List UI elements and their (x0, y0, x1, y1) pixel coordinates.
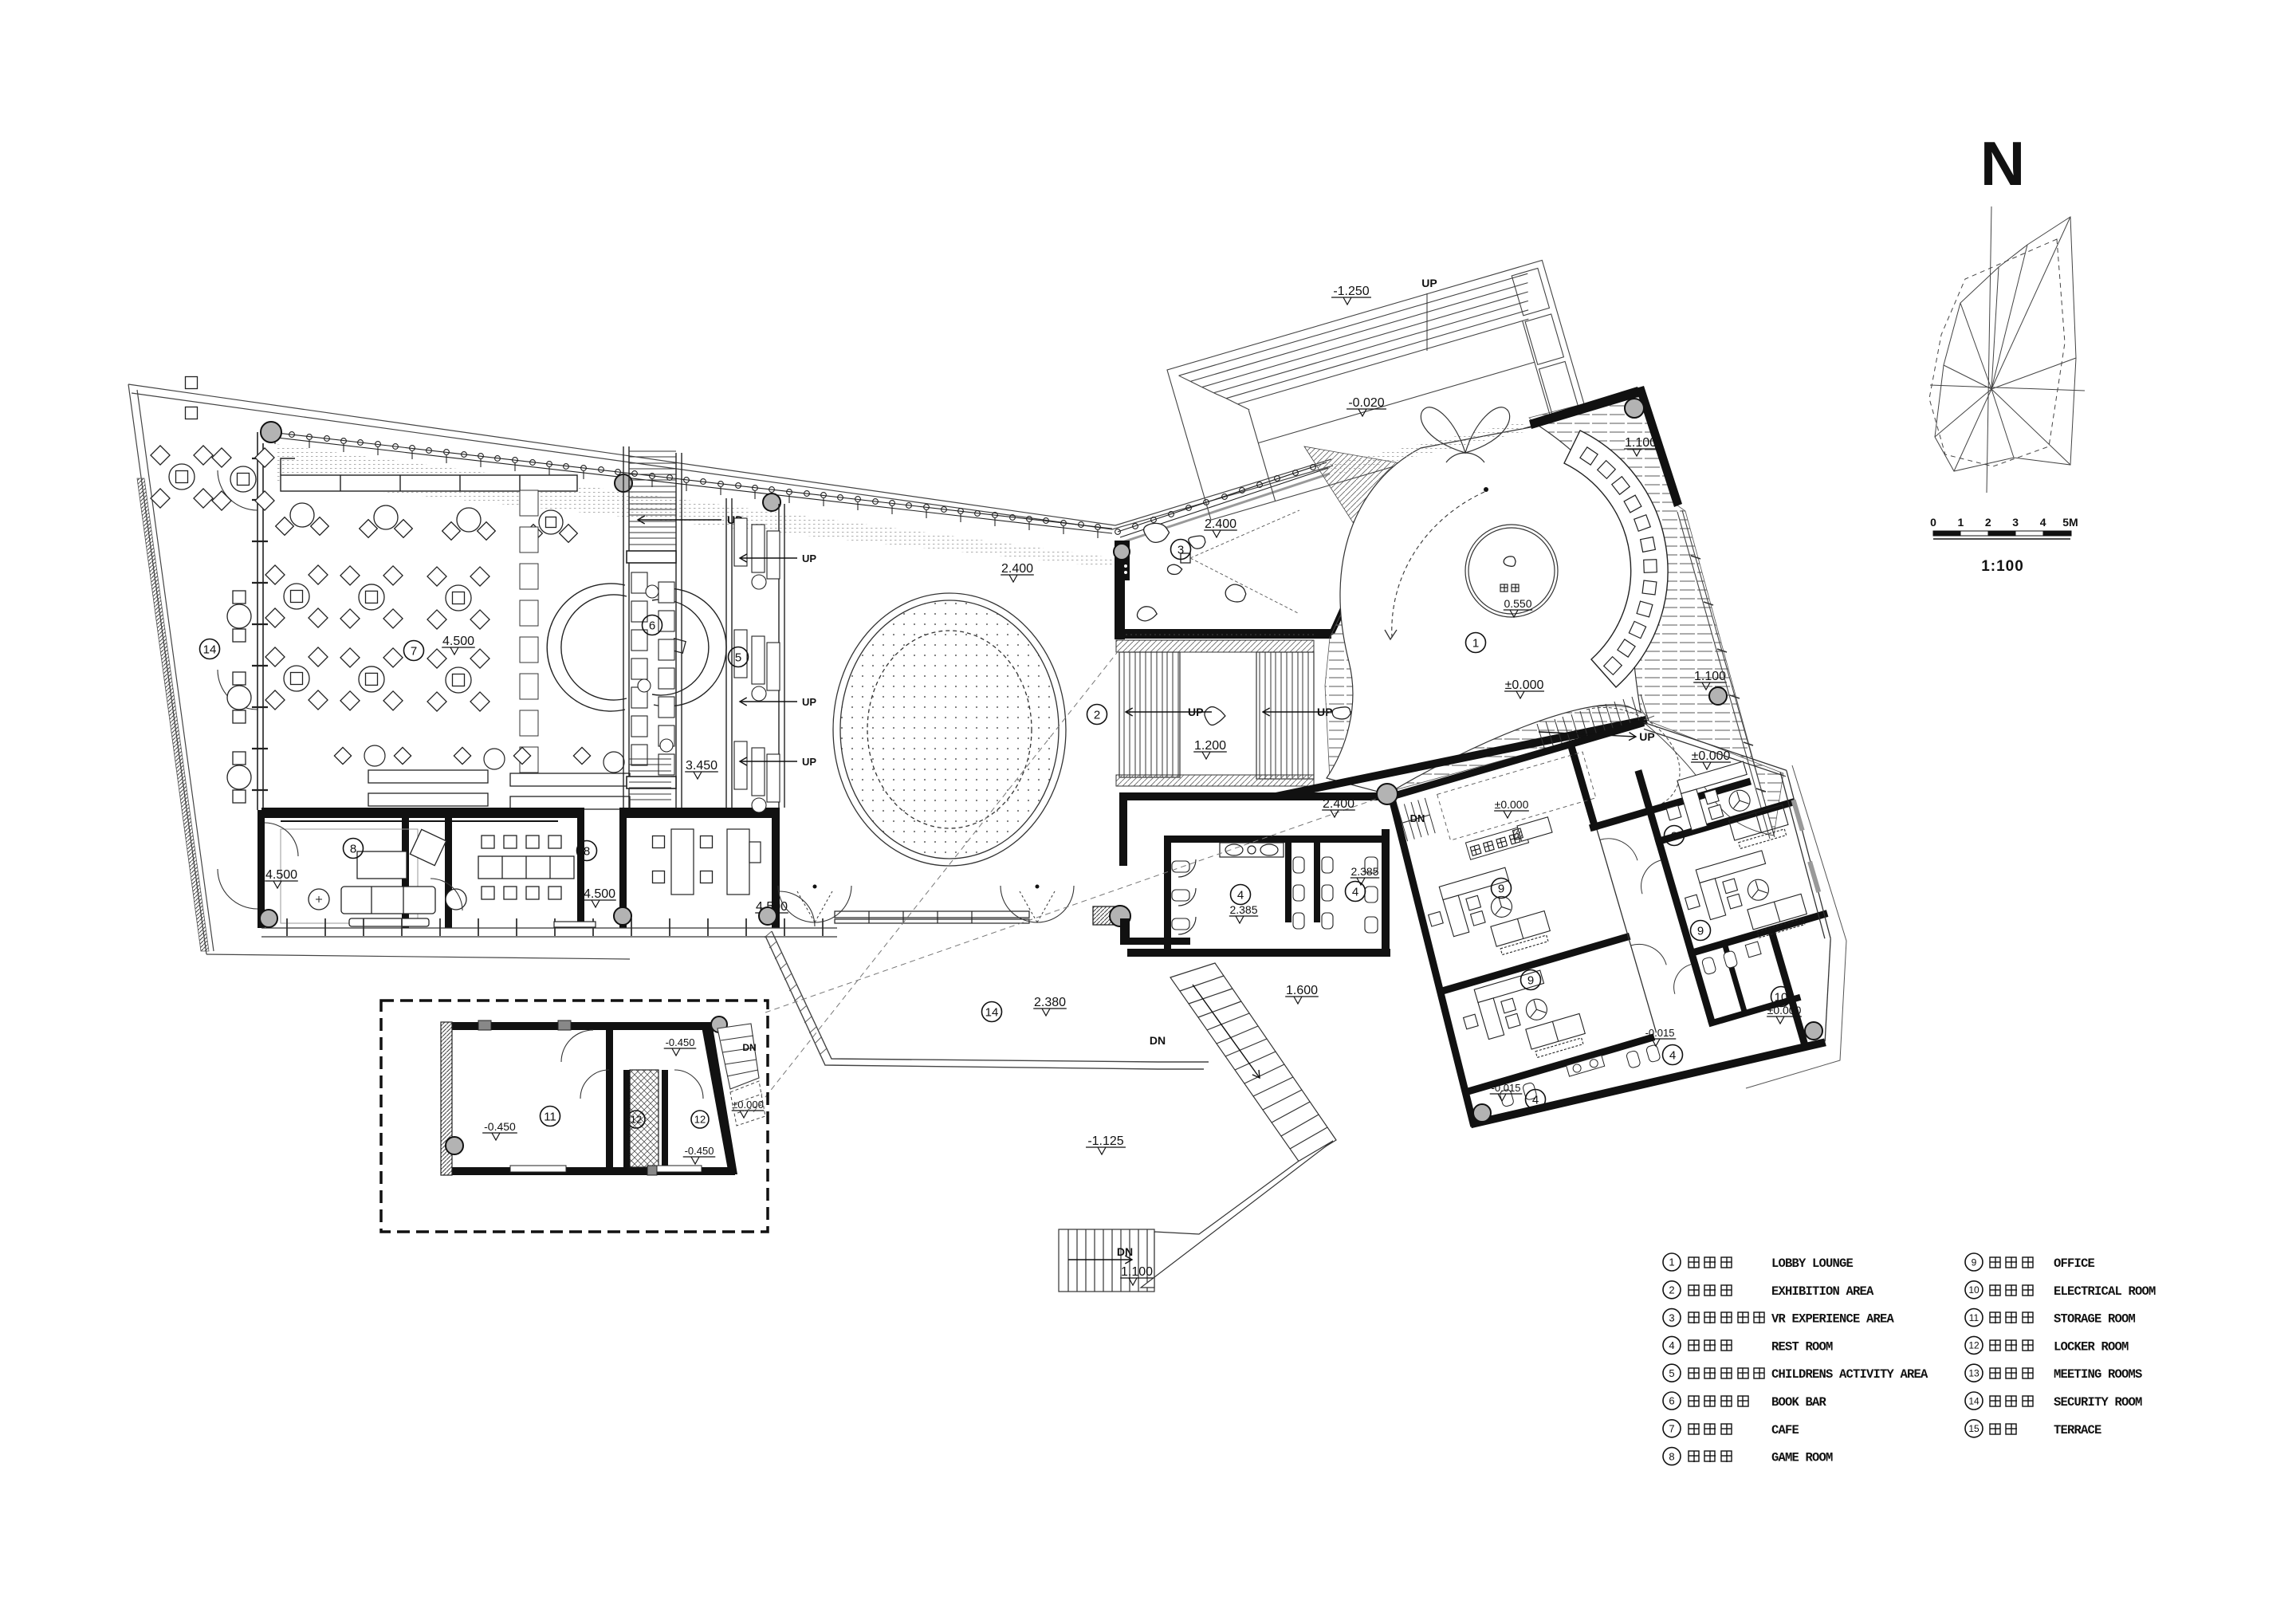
svg-text:1.600: 1.600 (1286, 984, 1318, 997)
svg-text:2.385: 2.385 (1350, 865, 1378, 878)
svg-text:8: 8 (1669, 1450, 1674, 1462)
svg-text:3.450: 3.450 (686, 759, 717, 773)
svg-text:5M: 5M (2062, 516, 2078, 529)
svg-text:8: 8 (350, 842, 356, 855)
svg-text:-0.450: -0.450 (685, 1145, 714, 1157)
svg-text:14: 14 (1968, 1395, 1980, 1406)
svg-text:12: 12 (631, 1114, 642, 1126)
svg-text:9: 9 (1972, 1256, 1977, 1268)
svg-text:MEETING ROOMS: MEETING ROOMS (2054, 1367, 2142, 1382)
svg-text:GAME ROOM: GAME ROOM (1771, 1451, 1833, 1465)
svg-text:7: 7 (411, 644, 417, 658)
svg-text:REST ROOM: REST ROOM (1771, 1339, 1833, 1354)
svg-text:1.200: 1.200 (1194, 739, 1226, 753)
svg-text:4: 4 (1532, 1093, 1539, 1107)
svg-text:±0.000: ±0.000 (1505, 678, 1544, 692)
svg-text:9: 9 (1671, 829, 1677, 843)
svg-text:DN: DN (1117, 1245, 1133, 1258)
svg-text:UP: UP (1421, 277, 1437, 289)
svg-text:8: 8 (584, 844, 590, 858)
svg-text:1: 1 (1958, 516, 1964, 529)
svg-text:2: 2 (1985, 516, 1991, 529)
svg-text:6: 6 (649, 619, 655, 632)
svg-text:5: 5 (735, 651, 741, 664)
svg-text:11: 11 (544, 1110, 556, 1123)
svg-text:±0.000: ±0.000 (1495, 798, 1529, 811)
svg-text:4: 4 (2040, 516, 2046, 529)
svg-text:4: 4 (1352, 885, 1358, 899)
svg-text:CAFE: CAFE (1771, 1423, 1799, 1437)
svg-text:14: 14 (985, 1005, 999, 1019)
svg-text:VR EXPERIENCE AREA: VR EXPERIENCE AREA (1771, 1312, 1895, 1327)
svg-text:3: 3 (2012, 516, 2019, 529)
svg-text:±0.000: ±0.000 (732, 1099, 764, 1111)
svg-text:4: 4 (1669, 1339, 1674, 1351)
svg-text:UP: UP (802, 756, 816, 768)
svg-text:6: 6 (1669, 1395, 1674, 1407)
svg-text:-1.250: -1.250 (1333, 285, 1369, 298)
svg-text:-0.015: -0.015 (1492, 1082, 1521, 1094)
svg-text:4: 4 (1669, 1048, 1676, 1062)
svg-text:N: N (1980, 128, 2025, 199)
svg-text:4.500: 4.500 (584, 887, 615, 901)
svg-text:OFFICE: OFFICE (2054, 1256, 2095, 1271)
svg-text:UP: UP (1188, 706, 1203, 718)
svg-text:9: 9 (1527, 973, 1534, 987)
svg-text:2.400: 2.400 (1001, 562, 1033, 576)
svg-text:5: 5 (1669, 1367, 1674, 1379)
svg-text:UP: UP (802, 552, 816, 564)
svg-text:DN: DN (742, 1042, 756, 1053)
svg-text:12: 12 (694, 1114, 706, 1126)
svg-text:-1.125: -1.125 (1087, 1134, 1123, 1148)
svg-text:1.100: 1.100 (1121, 1265, 1153, 1279)
svg-text:10: 10 (1775, 990, 1788, 1004)
svg-text:3: 3 (1177, 543, 1184, 556)
svg-text:2.385: 2.385 (1229, 903, 1257, 916)
svg-text:SECURITY ROOM: SECURITY ROOM (2054, 1395, 2142, 1410)
svg-text:2.400: 2.400 (1323, 797, 1354, 811)
svg-text:12: 12 (1968, 1340, 1980, 1351)
svg-text:ELECTRICAL ROOM: ELECTRICAL ROOM (2054, 1284, 2156, 1299)
svg-text:DN: DN (1410, 812, 1425, 824)
svg-text:10: 10 (1968, 1284, 1980, 1296)
svg-text:11: 11 (1969, 1312, 1980, 1323)
svg-text:-0.450: -0.450 (666, 1036, 695, 1048)
svg-text:1.100: 1.100 (1625, 436, 1657, 450)
svg-text:13: 13 (1968, 1368, 1980, 1379)
svg-text:1: 1 (1472, 636, 1479, 650)
svg-text:9: 9 (1498, 882, 1504, 895)
svg-text:3: 3 (1669, 1311, 1674, 1323)
svg-text:4.500: 4.500 (265, 868, 297, 882)
svg-text:4.500: 4.500 (442, 635, 474, 648)
svg-text:4: 4 (1237, 888, 1244, 902)
svg-text:BOOK BAR: BOOK BAR (1771, 1395, 1827, 1410)
svg-text:2: 2 (1669, 1284, 1674, 1296)
svg-text:1.100: 1.100 (1694, 670, 1726, 683)
svg-text:CHILDRENS ACTIVITY AREA: CHILDRENS ACTIVITY AREA (1771, 1367, 1928, 1382)
svg-text:2: 2 (1094, 708, 1100, 722)
svg-text:0: 0 (1930, 516, 1936, 529)
svg-text:±0.000: ±0.000 (1767, 1004, 1802, 1016)
svg-text:14: 14 (203, 643, 217, 656)
svg-text:2.380: 2.380 (1034, 996, 1066, 1009)
svg-text:TERRACE: TERRACE (2054, 1423, 2101, 1437)
svg-text:1:100: 1:100 (1981, 558, 2024, 575)
svg-text:STORAGE ROOM: STORAGE ROOM (2054, 1312, 2136, 1327)
svg-text:EXHIBITION AREA: EXHIBITION AREA (1771, 1284, 1874, 1299)
svg-text:-0.450: -0.450 (484, 1120, 516, 1133)
svg-text:7: 7 (1669, 1422, 1674, 1434)
svg-text:-0.015: -0.015 (1645, 1027, 1675, 1039)
svg-text:0.550: 0.550 (1504, 597, 1531, 610)
svg-text:2.400: 2.400 (1205, 517, 1236, 531)
svg-text:UP: UP (802, 696, 816, 708)
svg-text:DN: DN (1150, 1034, 1166, 1047)
svg-text:LOCKER ROOM: LOCKER ROOM (2054, 1339, 2129, 1354)
svg-text:9: 9 (1697, 924, 1704, 938)
svg-text:LOBBY LOUNGE: LOBBY LOUNGE (1771, 1256, 1854, 1271)
svg-text:1: 1 (1669, 1256, 1674, 1268)
svg-text:-0.020: -0.020 (1348, 396, 1384, 410)
svg-text:15: 15 (1968, 1423, 1980, 1434)
